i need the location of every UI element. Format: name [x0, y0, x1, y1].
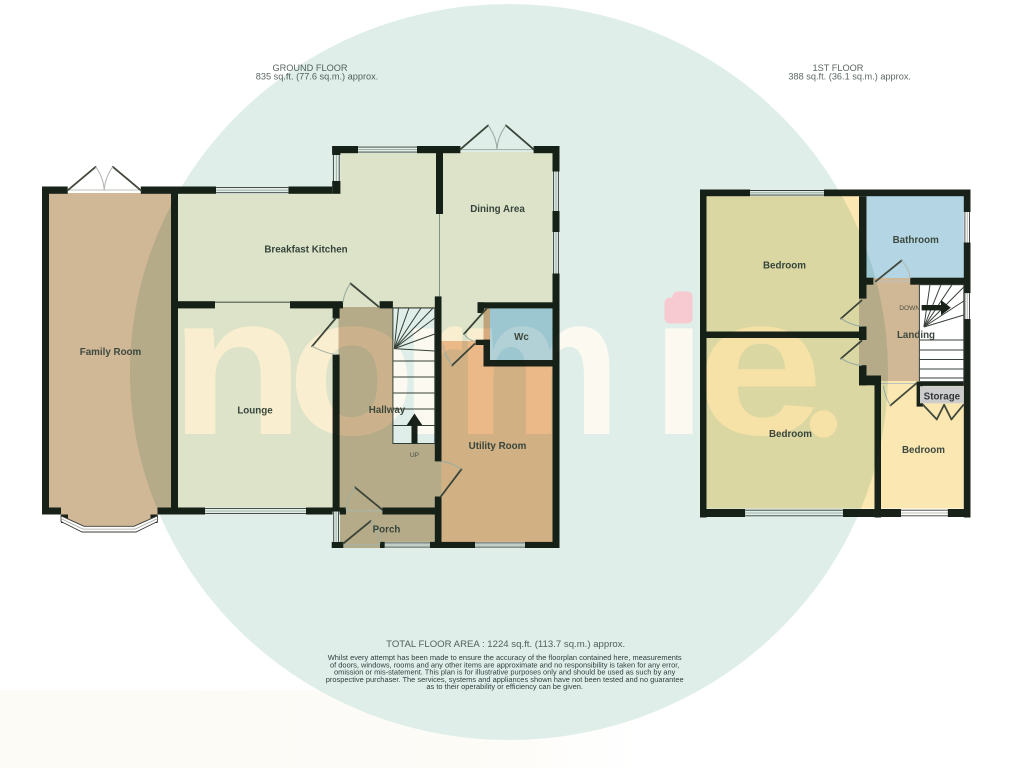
svg-text:Bedroom: Bedroom [769, 429, 812, 440]
svg-text:Family Room: Family Room [80, 347, 142, 358]
svg-text:Bathroom: Bathroom [893, 235, 940, 246]
svg-text:TOTAL FLOOR AREA : 1224 sq.ft.: TOTAL FLOOR AREA : 1224 sq.ft. (113.7 sq… [386, 639, 625, 650]
svg-text:Bedroom: Bedroom [763, 260, 806, 271]
svg-text:as to their operability or eff: as to their operability or efficiency ca… [426, 682, 583, 691]
svg-text:Utility Room: Utility Room [469, 441, 527, 452]
svg-text:Lounge: Lounge [237, 406, 273, 417]
svg-text:Porch: Porch [373, 525, 401, 536]
svg-text:Hallway: Hallway [369, 405, 406, 416]
svg-text:Wc: Wc [514, 332, 529, 343]
svg-text:DOWN: DOWN [899, 305, 920, 312]
svg-text:Dining Area: Dining Area [470, 204, 525, 215]
svg-text:Breakfast Kitchen: Breakfast Kitchen [264, 245, 347, 256]
svg-text:Bedroom: Bedroom [902, 445, 945, 456]
svg-text:835 sq.ft. (77.6 sq.m.) approx: 835 sq.ft. (77.6 sq.m.) approx. [256, 72, 379, 82]
svg-text:Storage: Storage [924, 391, 961, 402]
svg-text:Landing: Landing [897, 330, 935, 341]
svg-text:388 sq.ft. (36.1 sq.m.) approx: 388 sq.ft. (36.1 sq.m.) approx. [788, 72, 911, 82]
svg-text:UP: UP [410, 452, 420, 459]
